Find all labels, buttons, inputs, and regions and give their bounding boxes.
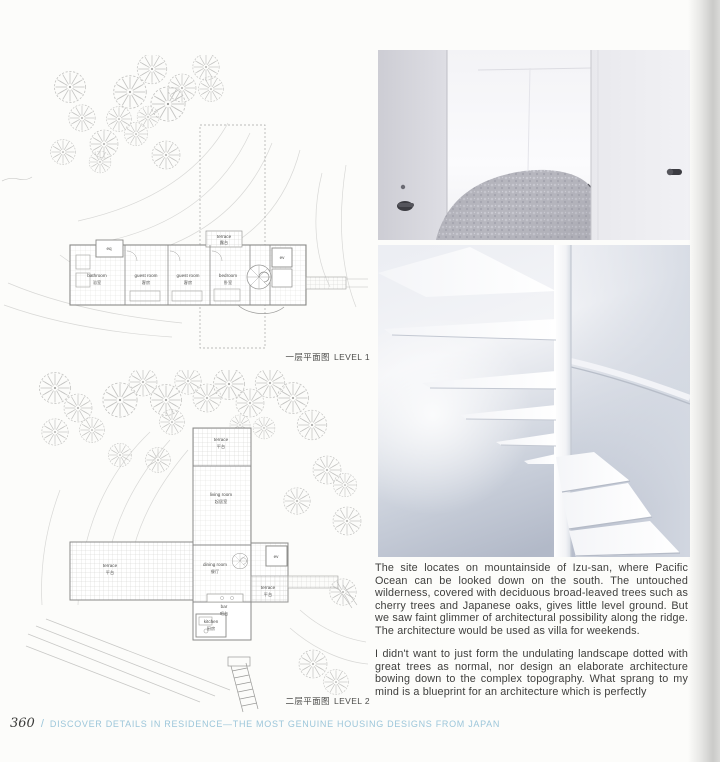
article-paragraph-1: The site locates on mountainside of Izu-…	[375, 562, 688, 637]
room-label-kitchen-zh: 厨房	[207, 625, 215, 632]
article-paragraph-2: I didn't want to just form the undulatin…	[375, 648, 688, 698]
room-label-eq: eq	[106, 246, 112, 251]
level1-caption: 一层平面图LEVEL 1	[240, 351, 370, 363]
footer-separator: /	[41, 718, 44, 730]
room-label-dining-en: dining room	[203, 562, 227, 567]
bedroom-photo	[378, 50, 690, 240]
article-text: The site locates on mountainside of Izu-…	[375, 562, 688, 709]
level1-caption-zh: 一层平面图	[285, 352, 330, 362]
spiral-stair-symbol	[232, 553, 248, 569]
room-label-bathroom-en: bathroom	[87, 273, 107, 278]
room-label-terrace-left-en: terrace	[103, 563, 118, 568]
page-number: 360	[10, 716, 35, 731]
room-label-kitchen-en: kitchen	[204, 619, 219, 624]
room-label-terrace-right-zh: 平台	[264, 591, 272, 598]
room-label-living-zh: 起居室	[215, 498, 228, 505]
book-page-edge	[688, 0, 720, 762]
spiral-stair-symbol	[247, 265, 271, 289]
level1-caption-en: LEVEL 1	[334, 352, 370, 362]
room-label-terrace1-en: terrace	[217, 234, 232, 239]
room-label-guest1-zh: 客房	[142, 279, 150, 286]
room-label-terrace-top-zh: 平台	[217, 443, 225, 450]
room-label-bedroom-zh: 卧室	[224, 279, 232, 286]
room-label-living-en: living room	[210, 492, 232, 497]
room-label-ev2: ev	[274, 554, 280, 559]
room-label-guest1-en: guest room	[135, 273, 158, 278]
room-label-terrace-top-en: terrace	[214, 437, 229, 442]
level2-caption-zh: 二层平面图	[285, 696, 330, 706]
level2-site-plan: terrace 平台 living room 起居室 terrace 平台 di…	[0, 370, 370, 715]
level1-site-plan: bathroom 浴室 eq guest room 客房 guest room …	[0, 55, 370, 355]
room-label-guest2-en: guest room	[177, 273, 200, 278]
level2-caption-en: LEVEL 2	[334, 696, 370, 706]
room-label-dining-zh: 餐厅	[211, 568, 219, 575]
door-handle-right-icon	[667, 169, 682, 175]
level2-room-labels: terrace 平台 living room 起居室 terrace 平台 di…	[103, 437, 279, 632]
staircase-photo	[378, 245, 690, 557]
room-label-bedroom-en: bedroom	[219, 273, 237, 278]
footer-book-title: DISCOVER DETAILS IN RESIDENCE—THE MOST G…	[50, 719, 500, 729]
room-label-bar-en: bar	[221, 604, 228, 609]
room-label-bar-zh: 吧台	[220, 610, 228, 617]
room-label-terrace1-zh: 露台	[220, 239, 228, 246]
level1-trees	[51, 55, 224, 173]
page-footer: 360 / DISCOVER DETAILS IN RESIDENCE—THE …	[10, 716, 500, 731]
level2-caption: 二层平面图LEVEL 2	[240, 695, 370, 707]
room-label-bathroom-zh: 浴室	[93, 279, 101, 286]
room-label-terrace-left-zh: 平台	[106, 569, 114, 576]
room-label-guest2-zh: 客房	[184, 279, 192, 286]
room-label-ev1: ev	[280, 255, 286, 260]
room-label-terrace-right-en: terrace	[261, 585, 276, 590]
